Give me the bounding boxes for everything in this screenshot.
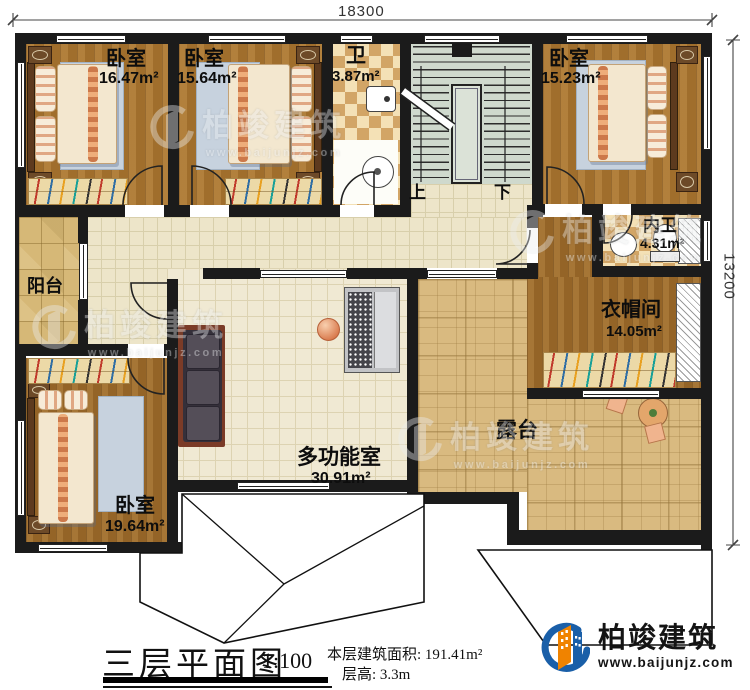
wall-corridor-top (374, 205, 401, 217)
floor-plan-canvas: 卧室 16.47m² 卧室 15.64m² 卫 3.87m² 卧室 15.23m… (0, 0, 750, 690)
room-area: 19.64m² (105, 519, 165, 535)
wall-terrace-top (497, 268, 538, 279)
floor-height-note: 层高: 3.3m (342, 663, 410, 684)
wardrobe (28, 358, 130, 384)
room-area: 15.23m² (541, 71, 601, 87)
wall-balcony-glass-post (78, 212, 88, 243)
pillow (38, 390, 62, 410)
brand-name: 柏竣建筑 (598, 624, 734, 652)
wall-multi-left (167, 279, 178, 553)
wardrobe (28, 178, 128, 205)
room-area: 16.47m² (99, 71, 159, 87)
nightstand (676, 46, 698, 64)
dimension-width: 18300 (338, 3, 385, 20)
wall-terrace-bottom (507, 530, 712, 545)
pillow (291, 116, 312, 162)
room-label: 衣帽间 (601, 300, 661, 320)
window (566, 35, 648, 43)
ball-icon (317, 318, 340, 341)
window (703, 220, 711, 262)
wardrobe (225, 178, 322, 205)
wall-b1-b2 (168, 33, 179, 217)
room-area: 30.91m² (311, 471, 371, 487)
floor-height-value: 3.3m (380, 667, 410, 683)
sofa-cushion (186, 334, 220, 369)
floor-area-note: 本层建筑面积: 191.41m² (327, 643, 482, 664)
wall-multi-top (347, 268, 427, 279)
bed-headboard (27, 398, 35, 516)
wall-b4-top (164, 344, 178, 356)
room-label: 内卫 (643, 217, 677, 234)
wall-b4-top (15, 344, 128, 356)
room-area: 14.05m² (606, 324, 662, 339)
roof-outline-left (140, 494, 424, 643)
floor-terrace-upper (418, 279, 527, 492)
sink-icon (610, 232, 637, 257)
room-area: 3.87m² (332, 69, 380, 84)
wall-corridor-top (15, 205, 125, 217)
drawing-scale: 1:100 (262, 648, 312, 674)
room-label: 卫 (346, 46, 366, 66)
window (260, 270, 347, 278)
room-label: 露台 (496, 420, 538, 441)
window (17, 420, 25, 516)
pillow (64, 390, 88, 410)
window (427, 270, 497, 278)
bed-runner (88, 66, 98, 162)
plant-icon (649, 409, 657, 417)
window (56, 35, 126, 43)
brand-logo-icon (538, 618, 590, 676)
wall-balcony-glass-post (78, 300, 88, 344)
wall-terrace-step (407, 492, 519, 504)
bed-headboard (27, 62, 35, 172)
pillow (647, 66, 667, 110)
shelf-cloakroom (676, 283, 701, 382)
window (340, 35, 373, 43)
room-label: 卧室 (106, 49, 146, 69)
pillow (35, 116, 56, 162)
wall-ensuite-bottom (592, 266, 712, 277)
floor-stair-lobby (411, 184, 532, 217)
room-label: 阳台 (27, 277, 63, 295)
room-label: 多功能室 (297, 447, 381, 468)
dimension-height: 13200 (721, 247, 738, 307)
pillow (291, 66, 312, 112)
washer-icon (366, 86, 396, 112)
brand-website: www.baijunjz.com (598, 655, 734, 670)
window (424, 35, 500, 43)
sofa-cushion (186, 370, 220, 405)
room-label: 卧室 (549, 49, 589, 69)
bed-runner (58, 414, 68, 522)
floor-cloakroom-hall (538, 217, 595, 277)
window (703, 56, 711, 150)
wall-corridor-top (229, 205, 340, 217)
floor-area-label: 本层建筑面积: (327, 647, 421, 663)
bed-runner (238, 66, 248, 162)
wall-multi-top (203, 268, 260, 279)
floor-corridor-left (87, 268, 167, 344)
stair-down-label: 下 (494, 184, 511, 201)
stair-run-left (413, 46, 449, 184)
wall-balcony-rail (15, 217, 19, 344)
wardrobe-cloakroom (543, 352, 676, 388)
room-label: 卧室 (184, 49, 224, 69)
toilet-tank-icon (650, 251, 680, 262)
wall-cloak-left (527, 205, 538, 228)
basin-drain-icon (374, 168, 381, 175)
floor-height-label: 层高: (342, 667, 376, 683)
floor-corridor (87, 217, 527, 268)
window (38, 544, 108, 552)
stair-landing (451, 84, 482, 184)
bed-headboard (670, 62, 678, 170)
pillow (647, 114, 667, 158)
bed-headboard (314, 62, 322, 172)
window (582, 390, 660, 398)
room-label: 卧室 (115, 496, 155, 516)
wall-corridor-top (164, 205, 190, 217)
nightstand (28, 46, 52, 64)
nightstand (676, 172, 698, 192)
brand-text: 柏竣建筑 www.baijunjz.com (598, 624, 734, 670)
room-area: 15.64m² (177, 71, 237, 87)
title-underline-thin (103, 686, 332, 688)
window (17, 62, 25, 168)
title-underline-thick (103, 677, 328, 683)
wall-b2-bath (322, 33, 333, 217)
pillow (35, 66, 56, 112)
sofa-cushion (186, 406, 220, 441)
wall-stair-b3 (532, 33, 543, 217)
nightstand (296, 46, 320, 64)
stair-up-label: 上 (409, 184, 426, 201)
wall-b3-bottom (631, 204, 712, 215)
room-area: 4.31m² (640, 236, 684, 250)
brand-logo: 柏竣建筑 www.baijunjz.com (538, 618, 734, 676)
washer-knob-icon (384, 96, 390, 102)
window-balcony-glass (79, 243, 88, 300)
wall-multi-right (407, 279, 418, 492)
piano-lid (374, 292, 396, 368)
piano-keys (348, 292, 372, 368)
window (208, 35, 286, 43)
floor-area-value: 191.41m² (425, 647, 482, 663)
stair-run-right (484, 46, 530, 184)
